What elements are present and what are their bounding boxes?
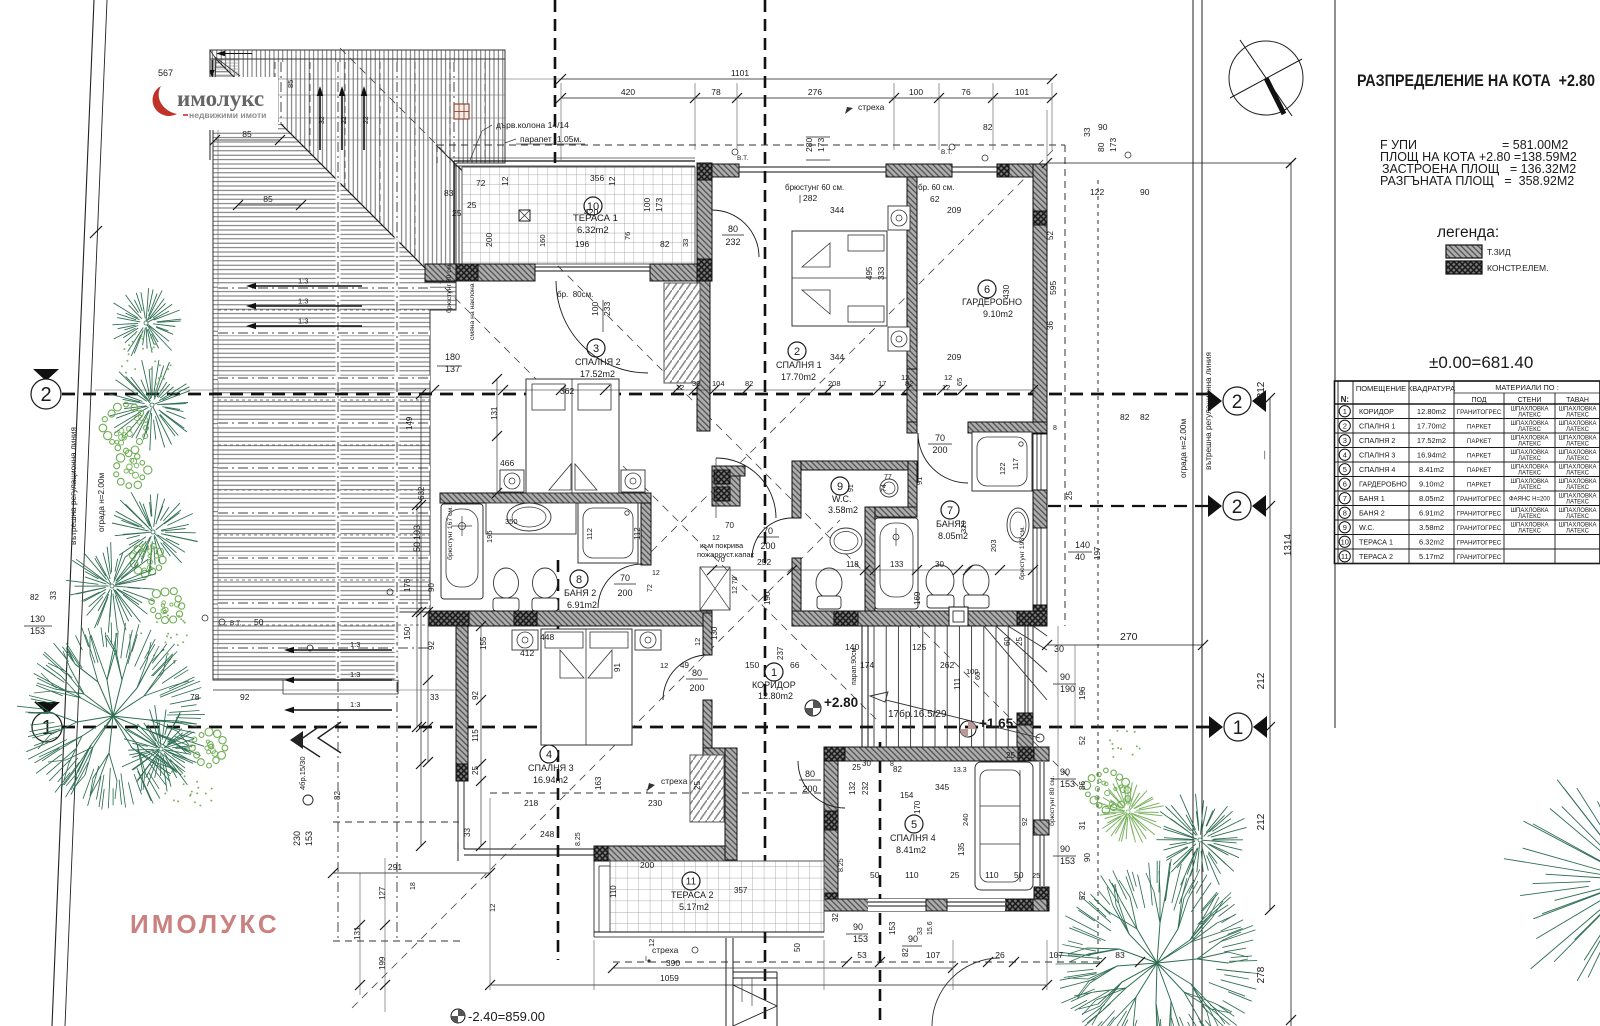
svg-text:50: 50	[254, 617, 264, 627]
svg-text:РАЗПРЕДЕЛЕНИЕ НА КОТА +2.80: РАЗПРЕДЕЛЕНИЕ НА КОТА +2.80	[1357, 71, 1595, 90]
svg-text:ШПАХЛОВКА: ШПАХЛОВКА	[1511, 421, 1549, 427]
svg-text:66: 66	[790, 660, 800, 670]
svg-text:ШПАХЛОВКА: ШПАХЛОВКА	[1511, 435, 1549, 441]
svg-text:149: 149	[405, 416, 414, 430]
svg-text:115: 115	[471, 729, 480, 742]
svg-text:СПАЛНЯ 4: СПАЛНЯ 4	[890, 833, 936, 843]
svg-text:10: 10	[1341, 537, 1349, 546]
svg-text:252: 252	[757, 557, 771, 567]
svg-text:82: 82	[333, 791, 342, 800]
svg-text:1059: 1059	[660, 973, 679, 983]
svg-text:-2.40=859.00: -2.40=859.00	[468, 1009, 545, 1024]
svg-text:200: 200	[640, 860, 654, 870]
svg-text:357: 357	[734, 886, 748, 895]
svg-text:270: 270	[1120, 631, 1138, 643]
svg-text:СПАЛНЯ 3: СПАЛНЯ 3	[528, 763, 574, 773]
svg-text:ГАРДЕРОБНО: ГАРДЕРОБНО	[1359, 479, 1407, 488]
svg-text:32: 32	[319, 116, 326, 124]
svg-text:230: 230	[292, 831, 302, 846]
svg-text:70: 70	[725, 521, 734, 530]
svg-text:ШПАХЛОВКА: ШПАХЛОВКА	[1559, 464, 1597, 470]
svg-text:495: 495	[865, 266, 874, 280]
svg-text:17.52m2: 17.52m2	[580, 369, 615, 379]
svg-text:12 70: 12 70	[732, 576, 739, 594]
svg-text:+1.65: +1.65	[979, 716, 1014, 731]
svg-text:КОРИДОР: КОРИДОР	[1359, 407, 1394, 416]
svg-text:25: 25	[1065, 491, 1074, 500]
svg-text:82: 82	[660, 239, 670, 249]
svg-text:КОРИДОР: КОРИДОР	[752, 680, 796, 690]
svg-text:176: 176	[403, 578, 412, 592]
svg-text:199: 199	[378, 956, 387, 970]
svg-text:131: 131	[490, 406, 499, 420]
svg-text:2: 2	[1232, 392, 1243, 413]
svg-text:203: 203	[989, 539, 998, 552]
svg-text:154: 154	[900, 791, 914, 800]
svg-text:110: 110	[609, 885, 618, 898]
svg-text:1:3: 1:3	[298, 277, 308, 286]
svg-text:БАНЯ 2: БАНЯ 2	[1359, 508, 1385, 517]
svg-text:КВАДРАТУРА: КВАДРАТУРА	[1408, 384, 1455, 393]
svg-text:БАНЯ 1: БАНЯ 1	[1359, 494, 1385, 503]
svg-text:111: 111	[953, 677, 962, 690]
svg-text:78: 78	[190, 692, 200, 702]
svg-text:СПАЛНЯ 1: СПАЛНЯ 1	[776, 360, 822, 370]
svg-text:117: 117	[1011, 458, 1020, 470]
svg-text:230: 230	[648, 798, 662, 808]
svg-text:МАТЕРИАЛИ ПО :: МАТЕРИАЛИ ПО :	[1495, 383, 1559, 392]
svg-text:85: 85	[263, 194, 273, 204]
svg-text:ЛАТЕКС: ЛАТЕКС	[1518, 413, 1542, 419]
svg-text:101: 101	[1015, 87, 1029, 97]
svg-text:6.91m2: 6.91m2	[567, 600, 597, 610]
svg-text:8: 8	[890, 761, 894, 768]
svg-text:100: 100	[590, 302, 600, 316]
svg-text:8: 8	[576, 574, 582, 586]
svg-text:567: 567	[158, 68, 173, 78]
svg-text:632: 632	[417, 486, 426, 500]
svg-text:31: 31	[1078, 821, 1087, 830]
svg-text:ГАРДЕРОБНО: ГАРДЕРОБНО	[962, 297, 1022, 307]
svg-text:209: 209	[947, 352, 961, 362]
svg-text:25: 25	[452, 208, 462, 218]
svg-text:12.80m2: 12.80m2	[1417, 407, 1446, 416]
svg-text:ЛАТЕКС: ЛАТЕКС	[1518, 529, 1542, 535]
svg-text:33: 33	[681, 239, 690, 247]
svg-text:200: 200	[932, 445, 947, 455]
svg-text:80: 80	[805, 769, 815, 779]
svg-text:вътрешна регулационна линия: вътрешна регулационна линия	[69, 427, 78, 545]
svg-text:9.10m2: 9.10m2	[983, 309, 1013, 319]
svg-text:бр. 80см.: бр. 80см.	[557, 290, 593, 299]
svg-text:248: 248	[540, 829, 554, 839]
svg-text:12: 12	[712, 535, 720, 542]
svg-text:140: 140	[1075, 540, 1090, 550]
svg-text:80: 80	[728, 224, 738, 234]
svg-text:ЛАТЕКС: ЛАТЕКС	[1566, 413, 1590, 419]
svg-text:8: 8	[1053, 425, 1057, 432]
svg-text:92: 92	[1020, 818, 1029, 826]
svg-text:82: 82	[1120, 412, 1130, 422]
svg-text:ШПАХЛОВКА: ШПАХЛОВКА	[1559, 450, 1597, 456]
svg-text:82: 82	[30, 593, 39, 602]
svg-text:107: 107	[1049, 950, 1063, 960]
svg-text:17.52m2: 17.52m2	[1417, 436, 1446, 445]
svg-text:ТЕРАСА 1: ТЕРАСА 1	[1359, 537, 1393, 546]
svg-text:72: 72	[647, 584, 654, 592]
svg-text:12: 12	[693, 638, 702, 646]
svg-text:92: 92	[471, 691, 480, 700]
svg-text:70: 70	[717, 557, 725, 564]
svg-text:122: 122	[1090, 187, 1104, 197]
svg-text:212: 212	[1256, 672, 1267, 689]
svg-text:РАЗГЪНАТА ПЛОЩ = 358.92М2: РАЗГЪНАТА ПЛОЩ = 358.92М2	[1380, 174, 1574, 188]
svg-text:±0.00=681.40: ±0.00=681.40	[1429, 353, 1533, 372]
svg-text:169: 169	[913, 591, 922, 605]
svg-text:5.17m2: 5.17m2	[679, 902, 709, 912]
svg-text:466: 466	[500, 458, 514, 468]
svg-text:91: 91	[848, 484, 855, 492]
svg-text:70: 70	[763, 526, 773, 536]
svg-text:СПАЛНЯ 2: СПАЛНЯ 2	[1359, 436, 1395, 445]
svg-text:50: 50	[1014, 870, 1024, 880]
svg-text:12: 12	[652, 570, 660, 577]
svg-text:240: 240	[961, 813, 970, 826]
svg-text:153: 153	[888, 921, 897, 935]
svg-text:3: 3	[1343, 436, 1347, 445]
svg-text:32: 32	[692, 379, 700, 388]
svg-text:90: 90	[1098, 122, 1108, 132]
svg-text:130: 130	[30, 614, 45, 624]
svg-text:ГРАНИТОГРЕС: ГРАНИТОГРЕС	[1457, 539, 1502, 546]
svg-text:180: 180	[445, 352, 460, 362]
svg-text:1:3: 1:3	[350, 640, 360, 649]
svg-text:8.41m2: 8.41m2	[896, 845, 926, 855]
svg-text:ЛАТЕКС: ЛАТЕКС	[1566, 427, 1590, 433]
svg-text:легенда:: легенда:	[1437, 224, 1499, 241]
svg-text:ГРАНИТОГРЕС: ГРАНИТОГРЕС	[1457, 409, 1502, 416]
svg-text:100: 100	[909, 87, 923, 97]
svg-text:5: 5	[911, 819, 917, 831]
svg-text:9: 9	[837, 481, 843, 493]
svg-text:33: 33	[430, 693, 439, 702]
svg-text:5: 5	[1343, 465, 1347, 474]
svg-text:190: 190	[763, 591, 772, 605]
svg-text:3: 3	[593, 343, 599, 355]
svg-text:163: 163	[594, 776, 603, 790]
svg-text:170: 170	[913, 800, 922, 814]
svg-text:СПАЛНЯ 3: СПАЛНЯ 3	[1359, 450, 1395, 459]
svg-text:ПАРКЕТ: ПАРКЕТ	[1467, 481, 1491, 488]
svg-text:173: 173	[654, 198, 664, 212]
svg-text:153: 153	[853, 934, 868, 944]
svg-text:1:3: 1:3	[350, 700, 360, 709]
svg-text:122: 122	[998, 462, 1007, 475]
svg-text:333: 333	[877, 266, 886, 280]
svg-text:25: 25	[1006, 751, 1015, 760]
svg-text:50: 50	[870, 870, 880, 880]
svg-text:+2.80: +2.80	[824, 695, 858, 710]
svg-text:90: 90	[1060, 767, 1070, 777]
svg-text:8.41m2: 8.41m2	[1419, 465, 1444, 474]
svg-text:ЛАТЕКС: ЛАТЕКС	[1518, 514, 1542, 520]
svg-text:1: 1	[1233, 718, 1244, 739]
svg-text:218: 218	[524, 798, 538, 808]
svg-text:70: 70	[620, 573, 630, 583]
svg-text:150: 150	[745, 660, 759, 670]
svg-text:118: 118	[846, 560, 859, 569]
svg-text:1:3: 1:3	[298, 317, 308, 326]
svg-text:15.6: 15.6	[927, 921, 934, 935]
svg-text:25: 25	[693, 781, 702, 790]
svg-text:ПАРКЕТ: ПАРКЕТ	[1467, 467, 1491, 474]
svg-text:ПАРКЕТ: ПАРКЕТ	[1467, 438, 1491, 445]
svg-text:30: 30	[935, 560, 944, 569]
svg-text:N:: N:	[1341, 395, 1349, 404]
svg-text:В.Т.: В.Т.	[737, 155, 748, 162]
svg-text:83: 83	[444, 188, 454, 198]
svg-text:33: 33	[1082, 127, 1092, 137]
svg-text:83: 83	[1115, 950, 1125, 960]
svg-text:153: 153	[1060, 779, 1075, 789]
svg-text:2: 2	[794, 346, 800, 358]
svg-text:448: 448	[540, 632, 554, 642]
svg-text:ЛАТЕКС: ЛАТЕКС	[1566, 456, 1590, 462]
svg-text:72: 72	[476, 178, 486, 188]
svg-text:3.58m2: 3.58m2	[828, 505, 858, 515]
svg-text:25: 25	[950, 870, 960, 880]
svg-text:173: 173	[1108, 138, 1118, 152]
svg-text:86: 86	[1078, 781, 1087, 790]
svg-text:ИМОЛУКС: ИМОЛУКС	[130, 909, 280, 939]
svg-text:ТАВАН: ТАВАН	[1566, 397, 1589, 404]
svg-text:90: 90	[853, 922, 863, 932]
svg-text:3.58m2: 3.58m2	[1419, 523, 1444, 532]
svg-text:ограда н=2.00м: ограда н=2.00м	[97, 473, 106, 532]
svg-text:195: 195	[485, 530, 494, 543]
svg-text:153: 153	[1060, 856, 1075, 866]
svg-text:160: 160	[538, 234, 547, 247]
svg-text:16.94m2: 16.94m2	[1417, 450, 1446, 459]
svg-text:ШПАХЛОВКА: ШПАХЛОВКА	[1559, 406, 1597, 412]
svg-text:8.05m2: 8.05m2	[1419, 494, 1444, 503]
svg-text:209: 209	[947, 205, 961, 215]
svg-text:дърв.колона 14/14: дърв.колона 14/14	[496, 120, 569, 130]
svg-text:16.94m2: 16.94m2	[533, 775, 568, 785]
svg-text:80: 80	[692, 668, 702, 678]
svg-text:50: 50	[793, 943, 802, 952]
svg-text:СПАЛНЯ 4: СПАЛНЯ 4	[1359, 465, 1395, 474]
svg-text:430: 430	[1001, 285, 1011, 299]
svg-text:ШПАХЛОВКА: ШПАХЛОВКА	[1511, 406, 1549, 412]
svg-text:ШПАХЛОВКА: ШПАХЛОВКА	[1559, 421, 1597, 427]
svg-text:133: 133	[890, 560, 904, 569]
svg-text:18: 18	[410, 882, 417, 890]
svg-text:278: 278	[1256, 966, 1267, 983]
svg-text:ЛАТЕКС: ЛАТЕКС	[1566, 442, 1590, 448]
svg-text:155: 155	[479, 636, 488, 650]
svg-text:276: 276	[808, 87, 822, 97]
svg-text:362: 362	[560, 386, 574, 396]
svg-text:52: 52	[1078, 736, 1087, 745]
svg-text:1101: 1101	[731, 68, 750, 78]
svg-text:ШПАХЛОВКА: ШПАХЛОВКА	[1511, 522, 1549, 528]
svg-text:212: 212	[1256, 813, 1267, 830]
svg-text:ПАРКЕТ: ПАРКЕТ	[1467, 452, 1491, 459]
svg-text:12: 12	[488, 904, 497, 912]
svg-text:232: 232	[861, 781, 870, 795]
svg-text:—: —	[1259, 450, 1269, 459]
svg-text:127: 127	[378, 886, 387, 900]
svg-text:пожароуст.капак: пожароуст.капак	[697, 550, 755, 559]
svg-text:595: 595	[1048, 281, 1058, 295]
svg-text:320: 320	[959, 520, 968, 533]
svg-text:107: 107	[926, 950, 940, 960]
svg-text:9.10m2: 9.10m2	[1419, 479, 1444, 488]
svg-text:78: 78	[711, 87, 721, 97]
svg-text:ШПАХЛОВКА: ШПАХЛОВКА	[1559, 522, 1597, 528]
svg-text:стреха: стреха	[858, 102, 885, 112]
svg-text:100: 100	[642, 198, 652, 212]
svg-text:6.32m2: 6.32m2	[1419, 537, 1444, 546]
svg-text:11: 11	[1341, 552, 1349, 561]
svg-text:32: 32	[831, 913, 840, 922]
svg-text:130: 130	[710, 626, 719, 640]
svg-text:22: 22	[341, 116, 348, 124]
svg-text:153: 153	[304, 831, 314, 846]
svg-text:Т.ЗИД: Т.ЗИД	[1487, 247, 1511, 257]
svg-text:брюстунг 80 см.: брюстунг 80 см.	[1048, 776, 1056, 826]
svg-text:77: 77	[884, 474, 892, 481]
svg-text:12.80m2: 12.80m2	[758, 691, 793, 701]
svg-text:153: 153	[30, 626, 45, 636]
svg-text:197: 197	[1093, 546, 1102, 560]
svg-text:17бр.16.5/29: 17бр.16.5/29	[888, 708, 947, 720]
svg-text:към покрива: към покрива	[700, 541, 744, 550]
svg-text:60: 60	[1003, 637, 1012, 646]
svg-text:7: 7	[947, 505, 953, 517]
svg-text:92: 92	[427, 641, 436, 650]
svg-text:90: 90	[1083, 853, 1092, 862]
svg-text:112: 112	[633, 527, 642, 540]
svg-text:65: 65	[955, 378, 964, 386]
svg-text:2: 2	[1343, 421, 1347, 430]
svg-text:90: 90	[1060, 672, 1070, 682]
svg-text:150: 150	[403, 626, 412, 640]
svg-text:ГРАНИТОГРЕС: ГРАНИТОГРЕС	[1457, 510, 1502, 517]
svg-text:БАНЯ 2: БАНЯ 2	[564, 588, 596, 598]
svg-text:ЛАТЕКС: ЛАТЕКС	[1566, 485, 1590, 491]
svg-text:11: 11	[686, 877, 697, 888]
svg-text:137: 137	[445, 364, 460, 374]
svg-text:12: 12	[660, 661, 668, 670]
svg-text:12: 12	[500, 176, 510, 186]
svg-text:брюстунг 80 см.: брюстунг 80 см.	[445, 263, 453, 313]
svg-text:90: 90	[1140, 187, 1150, 197]
svg-text:76: 76	[623, 232, 632, 240]
svg-text:6.91m2: 6.91m2	[1419, 508, 1444, 517]
svg-text:82: 82	[901, 948, 910, 957]
svg-text:40: 40	[1075, 552, 1085, 562]
svg-text:смяна на наклона: смяна на наклона	[469, 283, 476, 340]
svg-text:237: 237	[776, 646, 785, 660]
svg-text:25: 25	[1015, 637, 1024, 646]
svg-text:52: 52	[1078, 891, 1087, 900]
svg-text:8.25: 8.25	[575, 832, 582, 846]
svg-text:356: 356	[590, 173, 604, 183]
svg-text:ШПАХЛОВКА: ШПАХЛОВКА	[1511, 508, 1549, 514]
svg-text:9: 9	[1343, 523, 1347, 532]
svg-text:ГРАНИТОГРЕС: ГРАНИТОГРЕС	[1457, 496, 1502, 503]
svg-text:W.C.: W.C.	[832, 494, 852, 504]
svg-text:1:3: 1:3	[350, 670, 360, 679]
svg-text:ЛАТЕКС: ЛАТЕКС	[1566, 500, 1590, 506]
svg-text:62: 62	[930, 194, 940, 204]
svg-text:92: 92	[240, 692, 250, 702]
svg-text:200: 200	[802, 784, 817, 794]
svg-text:КОНСТР.ЕЛЕМ.: КОНСТР.ЕЛЕМ.	[1487, 263, 1548, 273]
svg-text:390: 390	[666, 958, 680, 968]
svg-text:СПАЛНЯ 1: СПАЛНЯ 1	[1359, 421, 1395, 430]
svg-text:345: 345	[935, 782, 949, 792]
svg-text:200: 200	[484, 233, 494, 247]
svg-text:36: 36	[1046, 321, 1055, 330]
svg-text:135: 135	[957, 842, 966, 856]
svg-text:ПАРКЕТ: ПАРКЕТ	[1467, 423, 1491, 430]
svg-text:ПОМЕЩЕНИЕ: ПОМЕЩЕНИЕ	[1356, 384, 1406, 393]
svg-text:104: 104	[712, 379, 725, 388]
svg-text:W.C.: W.C.	[1359, 523, 1375, 532]
svg-text:85: 85	[242, 129, 252, 139]
svg-text:25: 25	[1032, 871, 1040, 880]
svg-text:ТЕРАСА 2: ТЕРАСА 2	[671, 890, 714, 900]
svg-text:30: 30	[862, 759, 871, 768]
svg-text:брюстунг 167 см.: брюстунг 167 см.	[446, 506, 454, 560]
svg-text:4бр.15/30: 4бр.15/30	[298, 757, 307, 791]
svg-text:6.32m2: 6.32m2	[577, 225, 609, 236]
svg-text:52: 52	[1046, 231, 1055, 240]
svg-text:5.17m2: 5.17m2	[1419, 552, 1444, 561]
svg-text:420: 420	[584, 207, 598, 217]
svg-text:ЛАТЕКС: ЛАТЕКС	[1518, 471, 1542, 477]
svg-text:2: 2	[1232, 497, 1243, 518]
svg-text:ФАЯНС Н=200: ФАЯНС Н=200	[1509, 497, 1551, 503]
svg-text:80: 80	[1096, 142, 1106, 152]
svg-text:49: 49	[680, 661, 689, 670]
svg-text:ШПАХЛОВКА: ШПАХЛОВКА	[1559, 435, 1597, 441]
svg-text:173: 173	[816, 138, 826, 152]
svg-text:ЛАТЕКС: ЛАТЕКС	[1518, 427, 1542, 433]
svg-text:13.3: 13.3	[953, 767, 967, 774]
svg-text:12: 12	[647, 939, 656, 947]
svg-text:291: 291	[388, 862, 402, 872]
svg-text:бр. 60 см.: бр. 60 см.	[918, 183, 954, 192]
svg-text:190: 190	[1060, 684, 1075, 694]
svg-text:344: 344	[830, 205, 844, 215]
svg-text:110: 110	[985, 870, 999, 880]
svg-text:ШПАХЛОВКА: ШПАХЛОВКА	[1511, 464, 1549, 470]
svg-text:ЛАТЕКС: ЛАТЕКС	[1566, 514, 1590, 520]
svg-text:стреха: стреха	[661, 776, 688, 786]
svg-text:брюстунг 60 см.: брюстунг 60 см.	[785, 183, 844, 192]
svg-text:СТЕНИ: СТЕНИ	[1518, 397, 1542, 404]
svg-text:парапет -1.05м.: парапет -1.05м.	[520, 134, 582, 144]
svg-text:282: 282	[803, 193, 817, 203]
svg-text:76: 76	[961, 87, 971, 97]
svg-text:280: 280	[804, 138, 814, 152]
svg-text:ПОД: ПОД	[1471, 397, 1486, 404]
svg-text:ЛАТЕКС: ЛАТЕКС	[1518, 456, 1542, 462]
